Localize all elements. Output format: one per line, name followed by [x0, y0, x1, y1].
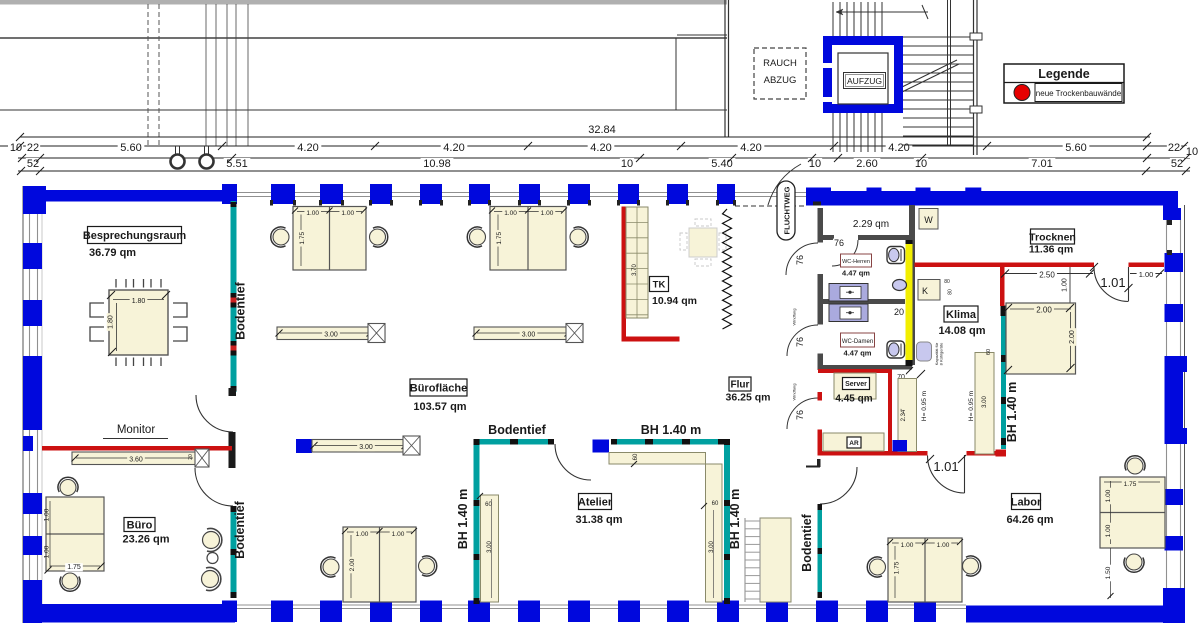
svg-text:3.00: 3.00: [522, 332, 536, 339]
svg-text:ABZUG: ABZUG: [764, 75, 797, 86]
svg-text:2.00: 2.00: [1036, 306, 1052, 315]
svg-text:1.00: 1.00: [541, 210, 554, 217]
svg-text:10: 10: [10, 142, 22, 154]
svg-text:1.00: 1.00: [306, 210, 319, 217]
svg-text:4.20: 4.20: [443, 142, 464, 154]
svg-text:4.45 qm: 4.45 qm: [835, 394, 872, 405]
svg-text:3.70: 3.70: [632, 264, 638, 276]
svg-text:1.80: 1.80: [132, 298, 146, 305]
svg-text:Legende: Legende: [1038, 67, 1089, 81]
svg-text:23.26 qm: 23.26 qm: [122, 534, 169, 546]
svg-text:1.00: 1.00: [44, 508, 51, 521]
svg-text:52: 52: [1171, 158, 1183, 170]
svg-text:76: 76: [795, 410, 805, 420]
svg-text:1.75: 1.75: [299, 232, 306, 245]
svg-text:1.75: 1.75: [1124, 481, 1137, 488]
svg-text:W: W: [924, 215, 933, 225]
svg-text:Labor: Labor: [1011, 496, 1042, 508]
svg-text:Büro: Büro: [127, 519, 153, 531]
svg-text:Bodentief: Bodentief: [488, 423, 546, 437]
svg-text:WC-Herren: WC-Herren: [842, 259, 870, 265]
svg-text:Server: Server: [845, 381, 867, 388]
svg-text:4.20: 4.20: [888, 142, 909, 154]
svg-text:22: 22: [1168, 142, 1180, 154]
svg-text:1.00: 1.00: [1062, 278, 1069, 292]
svg-text:10.98: 10.98: [423, 158, 451, 170]
svg-text:76: 76: [795, 255, 805, 265]
svg-text:5.60: 5.60: [1065, 142, 1086, 154]
svg-text:60: 60: [633, 453, 639, 460]
svg-text:80: 80: [948, 289, 954, 295]
svg-text:Bodentief: Bodentief: [233, 500, 247, 558]
svg-text:10: 10: [621, 158, 633, 170]
svg-text:60: 60: [986, 349, 992, 355]
svg-text:Atelier: Atelier: [578, 496, 613, 508]
svg-text:neue Trockenbauwände: neue Trockenbauwände: [1036, 89, 1122, 98]
svg-text:H= 0.95 m: H= 0.95 m: [921, 391, 928, 421]
svg-text:BH 1.40 m: BH 1.40 m: [728, 489, 742, 549]
svg-text:1.75: 1.75: [894, 561, 901, 574]
svg-text:2.60: 2.60: [856, 158, 877, 170]
svg-text:76: 76: [795, 337, 805, 347]
svg-text:1.00: 1.00: [937, 542, 950, 549]
svg-text:11.36 qm: 11.36 qm: [1029, 244, 1073, 256]
svg-text:7.01: 7.01: [1031, 158, 1052, 170]
svg-text:FLUCHTWEG: FLUCHTWEG: [783, 186, 792, 234]
svg-text:3.60: 3.60: [129, 457, 143, 464]
svg-text:32.84: 32.84: [588, 124, 616, 136]
svg-text:2.00: 2.00: [349, 558, 356, 571]
svg-text:1.01: 1.01: [933, 459, 958, 474]
svg-text:64.26 qm: 64.26 qm: [1006, 514, 1053, 526]
svg-text:3.00: 3.00: [324, 332, 338, 339]
svg-text:RAUCH: RAUCH: [763, 58, 797, 69]
svg-text:4.20: 4.20: [297, 142, 318, 154]
svg-text:20: 20: [894, 307, 904, 317]
svg-text:1.00: 1.00: [504, 210, 517, 217]
svg-text:76: 76: [834, 238, 844, 248]
svg-text:1.00: 1.00: [392, 531, 405, 538]
svg-text:1.75: 1.75: [496, 232, 503, 245]
svg-text:4.47 qm: 4.47 qm: [842, 269, 870, 278]
svg-text:3.00: 3.00: [982, 396, 988, 408]
svg-text:14.08 qm: 14.08 qm: [938, 325, 985, 337]
svg-text:2.34': 2.34': [901, 409, 907, 422]
svg-text:31.38 qm: 31.38 qm: [575, 514, 622, 526]
svg-text:4.20: 4.20: [590, 142, 611, 154]
svg-text:2.00: 2.00: [1069, 330, 1076, 344]
svg-text:Windfang: Windfang: [792, 309, 797, 326]
svg-text:3.00: 3.00: [487, 541, 493, 553]
svg-text:22: 22: [27, 142, 39, 154]
svg-text:1.00: 1.00: [44, 545, 51, 558]
svg-text:80: 80: [944, 279, 950, 285]
svg-text:Besprechungsraum: Besprechungsraum: [83, 230, 187, 242]
svg-text:8 Kühlgeräte: 8 Kühlgeräte: [939, 342, 944, 365]
svg-text:BH 1.40 m: BH 1.40 m: [641, 423, 701, 437]
svg-text:10.94 qm: 10.94 qm: [652, 295, 697, 307]
svg-text:WC-Damen: WC-Damen: [842, 339, 873, 345]
svg-text:4.20: 4.20: [740, 142, 761, 154]
svg-text:36.79 qm: 36.79 qm: [89, 247, 136, 259]
svg-text:1.80: 1.80: [108, 315, 115, 329]
svg-text:5.60: 5.60: [120, 142, 141, 154]
svg-text:1.50: 1.50: [1105, 566, 1112, 579]
svg-text:2.29 qm: 2.29 qm: [853, 219, 889, 230]
svg-text:Bodentief: Bodentief: [234, 281, 248, 339]
svg-text:Flur: Flur: [731, 380, 750, 391]
svg-text:3.00: 3.00: [359, 444, 373, 451]
svg-text:2.50: 2.50: [1039, 271, 1055, 280]
svg-text:H= 0.95 m: H= 0.95 m: [968, 391, 975, 421]
svg-text:1.01: 1.01: [1100, 275, 1125, 290]
svg-text:BH 1.40 m: BH 1.40 m: [1005, 382, 1019, 442]
svg-text:Trocknen: Trocknen: [1029, 231, 1076, 243]
svg-text:Bodentief: Bodentief: [800, 513, 814, 571]
svg-text:10: 10: [915, 158, 927, 170]
svg-text:1.00: 1.00: [1105, 524, 1112, 537]
svg-text:K: K: [922, 286, 928, 296]
svg-text:3.00: 3.00: [709, 541, 715, 553]
svg-text:1.00: 1.00: [341, 210, 354, 217]
svg-text:Bürofläche: Bürofläche: [410, 382, 467, 394]
svg-text:1.00: 1.00: [356, 531, 369, 538]
svg-text:52: 52: [27, 158, 39, 170]
svg-text:AUFZUG: AUFZUG: [847, 76, 882, 86]
svg-text:36.25 qm: 36.25 qm: [726, 392, 771, 404]
svg-text:60: 60: [712, 501, 719, 507]
svg-text:Windfang: Windfang: [792, 384, 797, 401]
svg-text:1.00: 1.00: [1139, 270, 1154, 279]
svg-text:BH 1.40 m: BH 1.40 m: [456, 489, 470, 549]
svg-text:AR: AR: [849, 440, 859, 447]
svg-text:1.75: 1.75: [67, 564, 81, 571]
svg-text:TK: TK: [653, 279, 666, 290]
svg-text:1.00: 1.00: [901, 542, 914, 549]
svg-text:20: 20: [188, 454, 194, 460]
svg-text:Monitor: Monitor: [117, 424, 156, 436]
svg-text:1.00: 1.00: [1105, 489, 1112, 502]
svg-text:103.57 qm: 103.57 qm: [413, 401, 466, 413]
svg-text:4.47 qm: 4.47 qm: [844, 349, 872, 358]
svg-text:Klima: Klima: [946, 309, 977, 321]
